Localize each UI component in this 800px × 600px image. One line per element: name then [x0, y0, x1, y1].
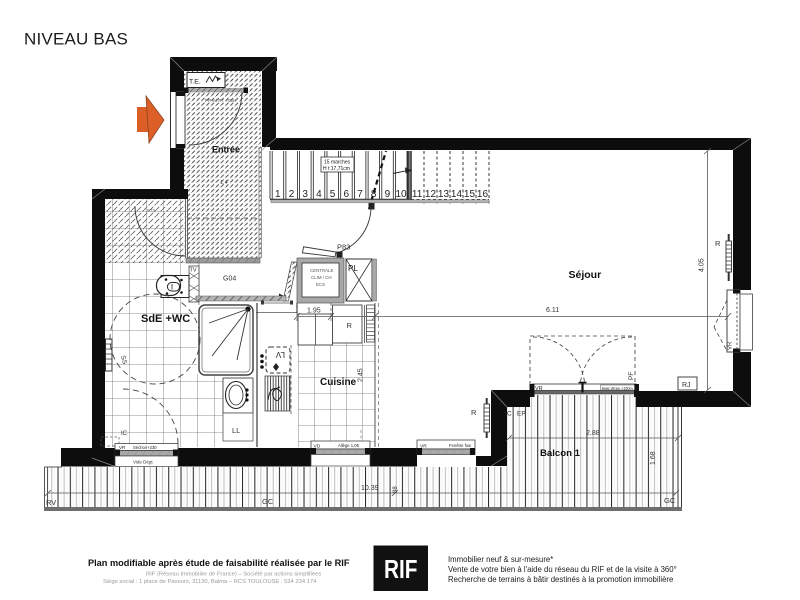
svg-text:RIF (Réseau Immobilier de Fran: RIF (Réseau Immobilier de France) – Soci… [146, 572, 321, 578]
svg-text:4: 4 [316, 189, 322, 200]
svg-text:GC: GC [664, 496, 676, 505]
svg-text:G04: G04 [223, 276, 236, 283]
svg-text:2.88: 2.88 [586, 430, 600, 437]
svg-text:LL: LL [232, 426, 240, 435]
svg-text:14: 14 [451, 189, 463, 200]
svg-text:VR: VR [119, 445, 126, 450]
svg-text:IC: IC [121, 431, 128, 437]
svg-text:13: 13 [438, 189, 450, 200]
svg-text:C: C [507, 411, 512, 418]
svg-text:Séchoir+230: Séchoir+230 [133, 445, 157, 450]
svg-text:R: R [471, 408, 477, 417]
svg-text:VR: VR [535, 386, 543, 392]
svg-text:P83: P83 [337, 243, 350, 252]
svg-text:Balcon 1: Balcon 1 [540, 448, 581, 459]
svg-text:16: 16 [477, 189, 489, 200]
svg-text:TV: TV [190, 268, 197, 274]
svg-text:10: 10 [396, 189, 408, 200]
svg-text:12: 12 [425, 189, 437, 200]
svg-text:7: 7 [357, 189, 363, 200]
svg-text:10.39: 10.39 [361, 485, 379, 492]
svg-text:H t 17,71cm: H t 17,71cm [323, 166, 350, 172]
svg-text:15: 15 [464, 189, 476, 200]
svg-text:Vide Dégt: Vide Dégt [133, 460, 153, 465]
svg-text:PP 94 PT +05H: PP 94 PT +05H [205, 98, 236, 103]
svg-text:NIVEAU BAS: NIVEAU BAS [24, 30, 128, 49]
svg-text:CLIM / CH: CLIM / CH [311, 275, 332, 280]
svg-text:SdE +WC: SdE +WC [141, 313, 190, 325]
svg-text:GC: GC [262, 497, 274, 506]
svg-text:6: 6 [344, 189, 350, 200]
svg-text:1: 1 [275, 189, 281, 200]
svg-text:2.45: 2.45 [358, 368, 365, 382]
svg-text:CENTRALE: CENTRALE [310, 268, 333, 273]
svg-text:Plan modifiable après étude de: Plan modifiable après étude de faisabili… [88, 558, 350, 568]
svg-text:LV: LV [275, 350, 285, 359]
svg-text:Allège 1,05: Allège 1,05 [338, 443, 360, 448]
svg-text:T.E.: T.E. [189, 79, 201, 86]
svg-text:4.05: 4.05 [699, 258, 706, 272]
svg-text:1,4: 1,4 [220, 180, 228, 186]
svg-text:Recherche de terrains à bâtir: Recherche de terrains à bâtir destinés à… [448, 575, 673, 584]
svg-text:RV: RV [46, 498, 56, 507]
svg-text:2: 2 [289, 189, 295, 200]
svg-text:9: 9 [385, 189, 391, 200]
svg-text:1.95: 1.95 [307, 308, 321, 315]
svg-text:1.68: 1.68 [650, 451, 657, 465]
svg-text:P73: P73 [147, 208, 156, 213]
svg-text:Entrée: Entrée [212, 145, 240, 155]
svg-text:Fenêtre fixe: Fenêtre fixe [449, 443, 472, 448]
svg-text:Séjour: Séjour [569, 269, 602, 281]
svg-text:Baie vitrée +150m: Baie vitrée +150m [602, 386, 633, 390]
svg-text:88: 88 [393, 486, 399, 493]
svg-text:Siège social : 1 place de Pave: Siège social : 1 place de Paveurs, 31130… [103, 579, 317, 585]
svg-text:EP: EP [517, 411, 526, 418]
svg-text:R: R [347, 321, 353, 330]
svg-text:RJ: RJ [682, 382, 691, 389]
svg-text:Cuisine: Cuisine [320, 377, 357, 388]
svg-text:11: 11 [412, 189, 423, 200]
svg-text:ECS: ECS [316, 282, 325, 287]
svg-text:VR: VR [728, 341, 734, 350]
svg-text:Immobilier neuf & sur-mesure*: Immobilier neuf & sur-mesure* [448, 555, 553, 564]
svg-text:15 marches: 15 marches [324, 160, 351, 166]
svg-text:RIF: RIF [384, 555, 417, 584]
svg-text:PL: PL [348, 264, 358, 273]
svg-text:3: 3 [302, 189, 308, 200]
svg-text:5: 5 [330, 189, 336, 200]
svg-text:6.11: 6.11 [546, 307, 559, 314]
svg-text:R: R [715, 239, 721, 248]
svg-text:PF: PF [628, 372, 635, 380]
svg-text:Vente de votre bien à l'aide d: Vente de votre bien à l'aide du réseau d… [448, 565, 677, 574]
